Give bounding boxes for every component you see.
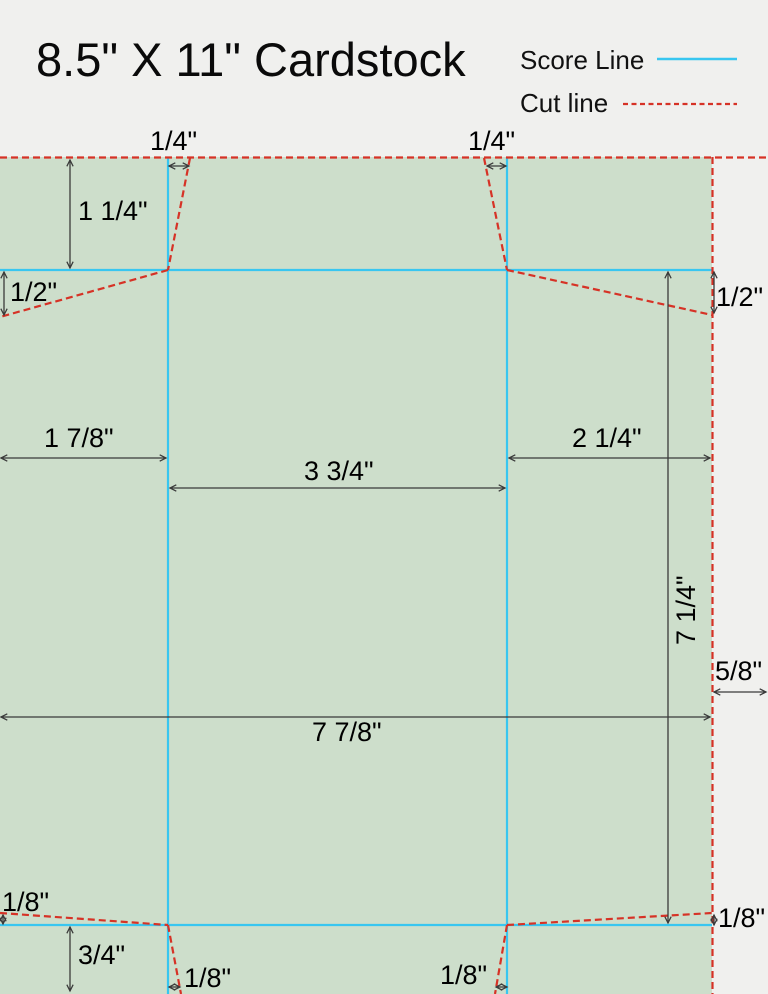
cardstock-template-diagram: 8.5" X 11" Cardstock Score Line Cut line… [0, 0, 768, 994]
dim-label-bottom-right-edge-rise: 1/8" [718, 905, 765, 932]
legend-score-label: Score Line [520, 46, 644, 75]
dim-label-body-height: 7 1/4" [673, 575, 700, 645]
dim-label-center-panel-width: 3 3/4" [304, 458, 374, 485]
dim-label-top-tab-right: 1/4" [468, 128, 515, 155]
dim-label-bottom-flap-depth: 3/4" [78, 942, 125, 969]
page-title: 8.5" X 11" Cardstock [36, 34, 466, 86]
dim-label-left-flap-drop: 1/2" [10, 279, 57, 306]
dim-label-top-flap-depth: 1 1/4" [78, 198, 148, 225]
dim-label-right-flap-drop: 1/2" [716, 284, 763, 311]
diagram-lines-layer [0, 0, 768, 994]
dim-label-left-panel-width: 1 7/8" [44, 425, 114, 452]
dim-label-right-margin: 5/8" [715, 658, 762, 685]
dim-label-bottom-left-edge-rise: 1/8" [2, 889, 49, 916]
cardstock-sheet [0, 157, 712, 994]
legend-cut-label: Cut line [520, 89, 608, 118]
dim-label-top-tab-left: 1/4" [150, 128, 197, 155]
dim-label-body-width: 7 7/8" [312, 719, 382, 746]
dim-label-right-panel-width: 2 1/4" [572, 425, 642, 452]
dim-label-bottom-tab-right: 1/8" [440, 962, 487, 989]
dim-label-bottom-tab-left: 1/8" [184, 965, 231, 992]
